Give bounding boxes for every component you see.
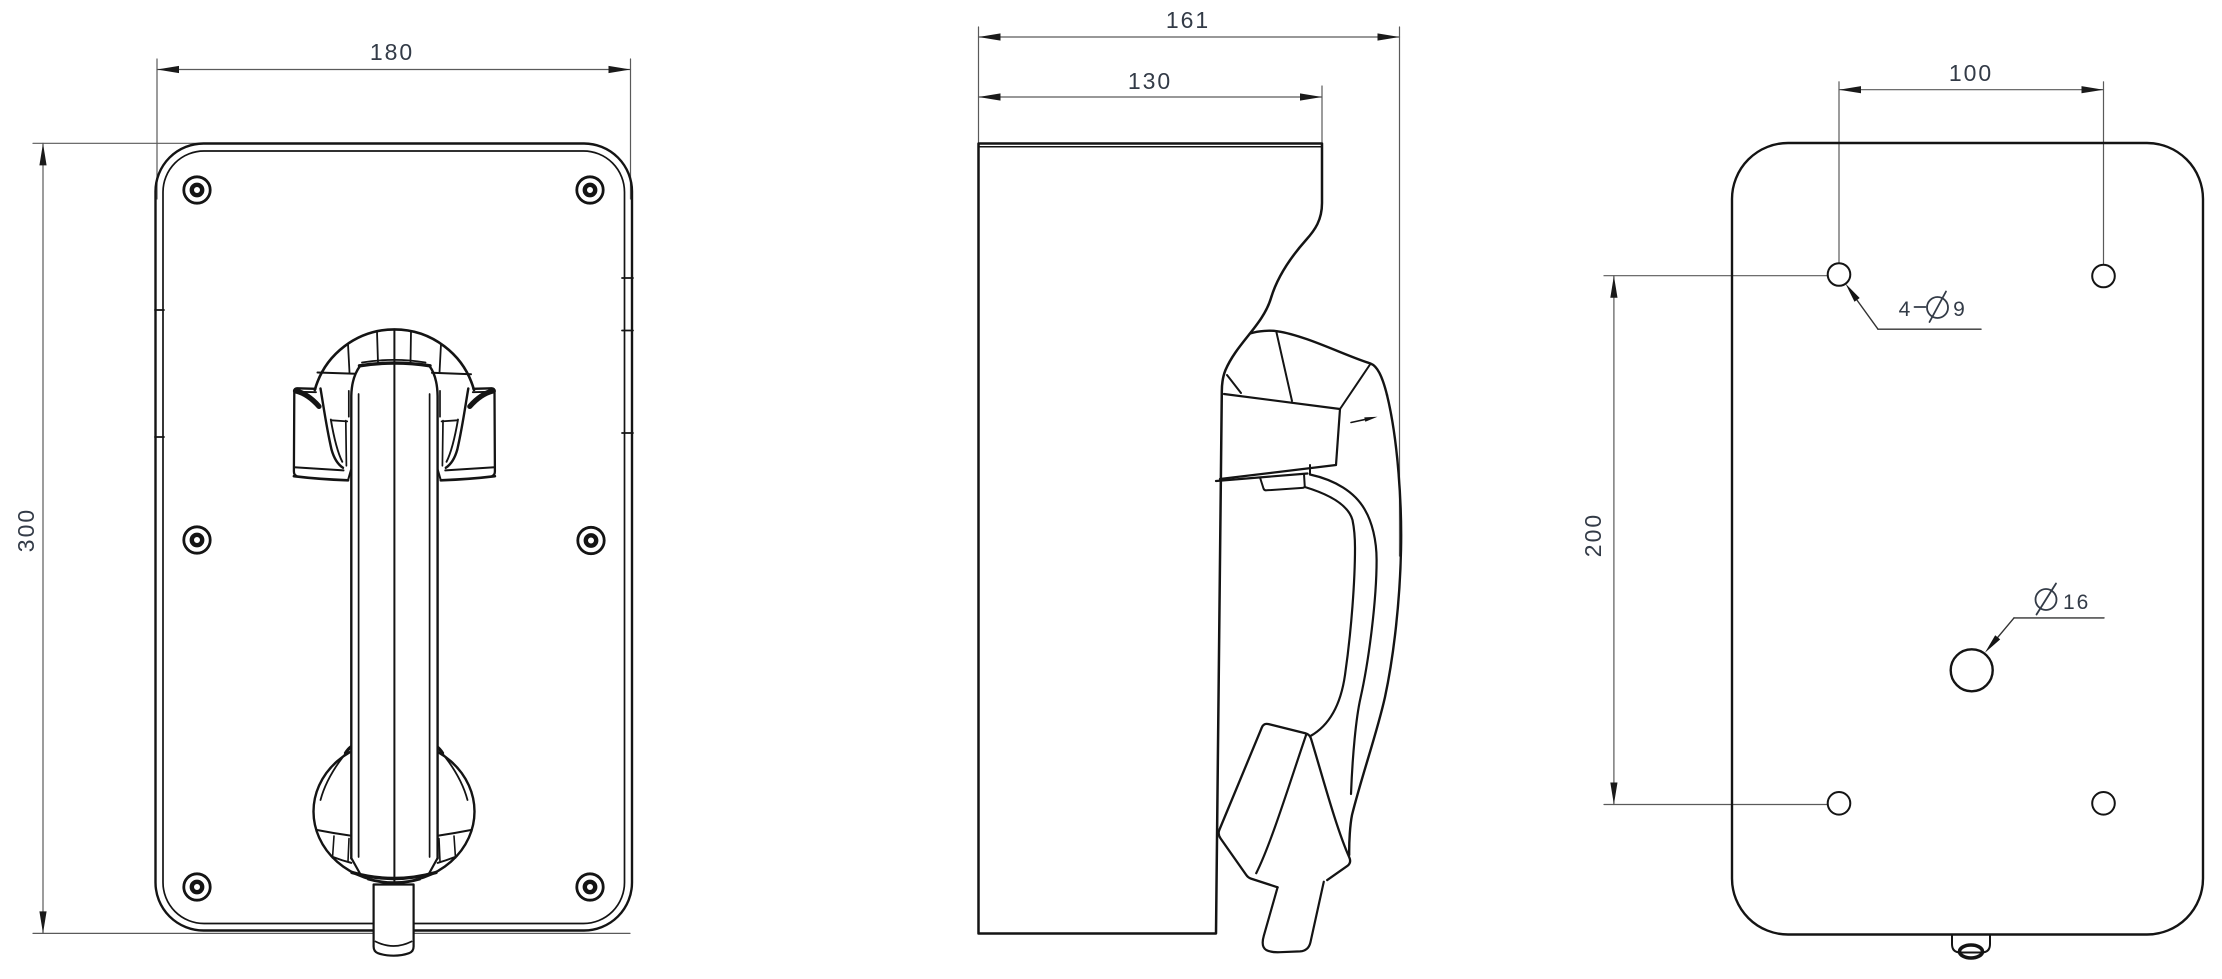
svg-text:4: 4 — [1899, 298, 1911, 321]
svg-text:161: 161 — [1166, 7, 1210, 33]
svg-text:180: 180 — [370, 39, 414, 65]
svg-text:130: 130 — [1128, 68, 1172, 94]
svg-text:16: 16 — [2063, 591, 2090, 614]
svg-text:200: 200 — [1580, 513, 1606, 557]
svg-text:100: 100 — [1949, 60, 1993, 86]
svg-text:9: 9 — [1953, 298, 1965, 321]
svg-text:300: 300 — [13, 508, 39, 552]
